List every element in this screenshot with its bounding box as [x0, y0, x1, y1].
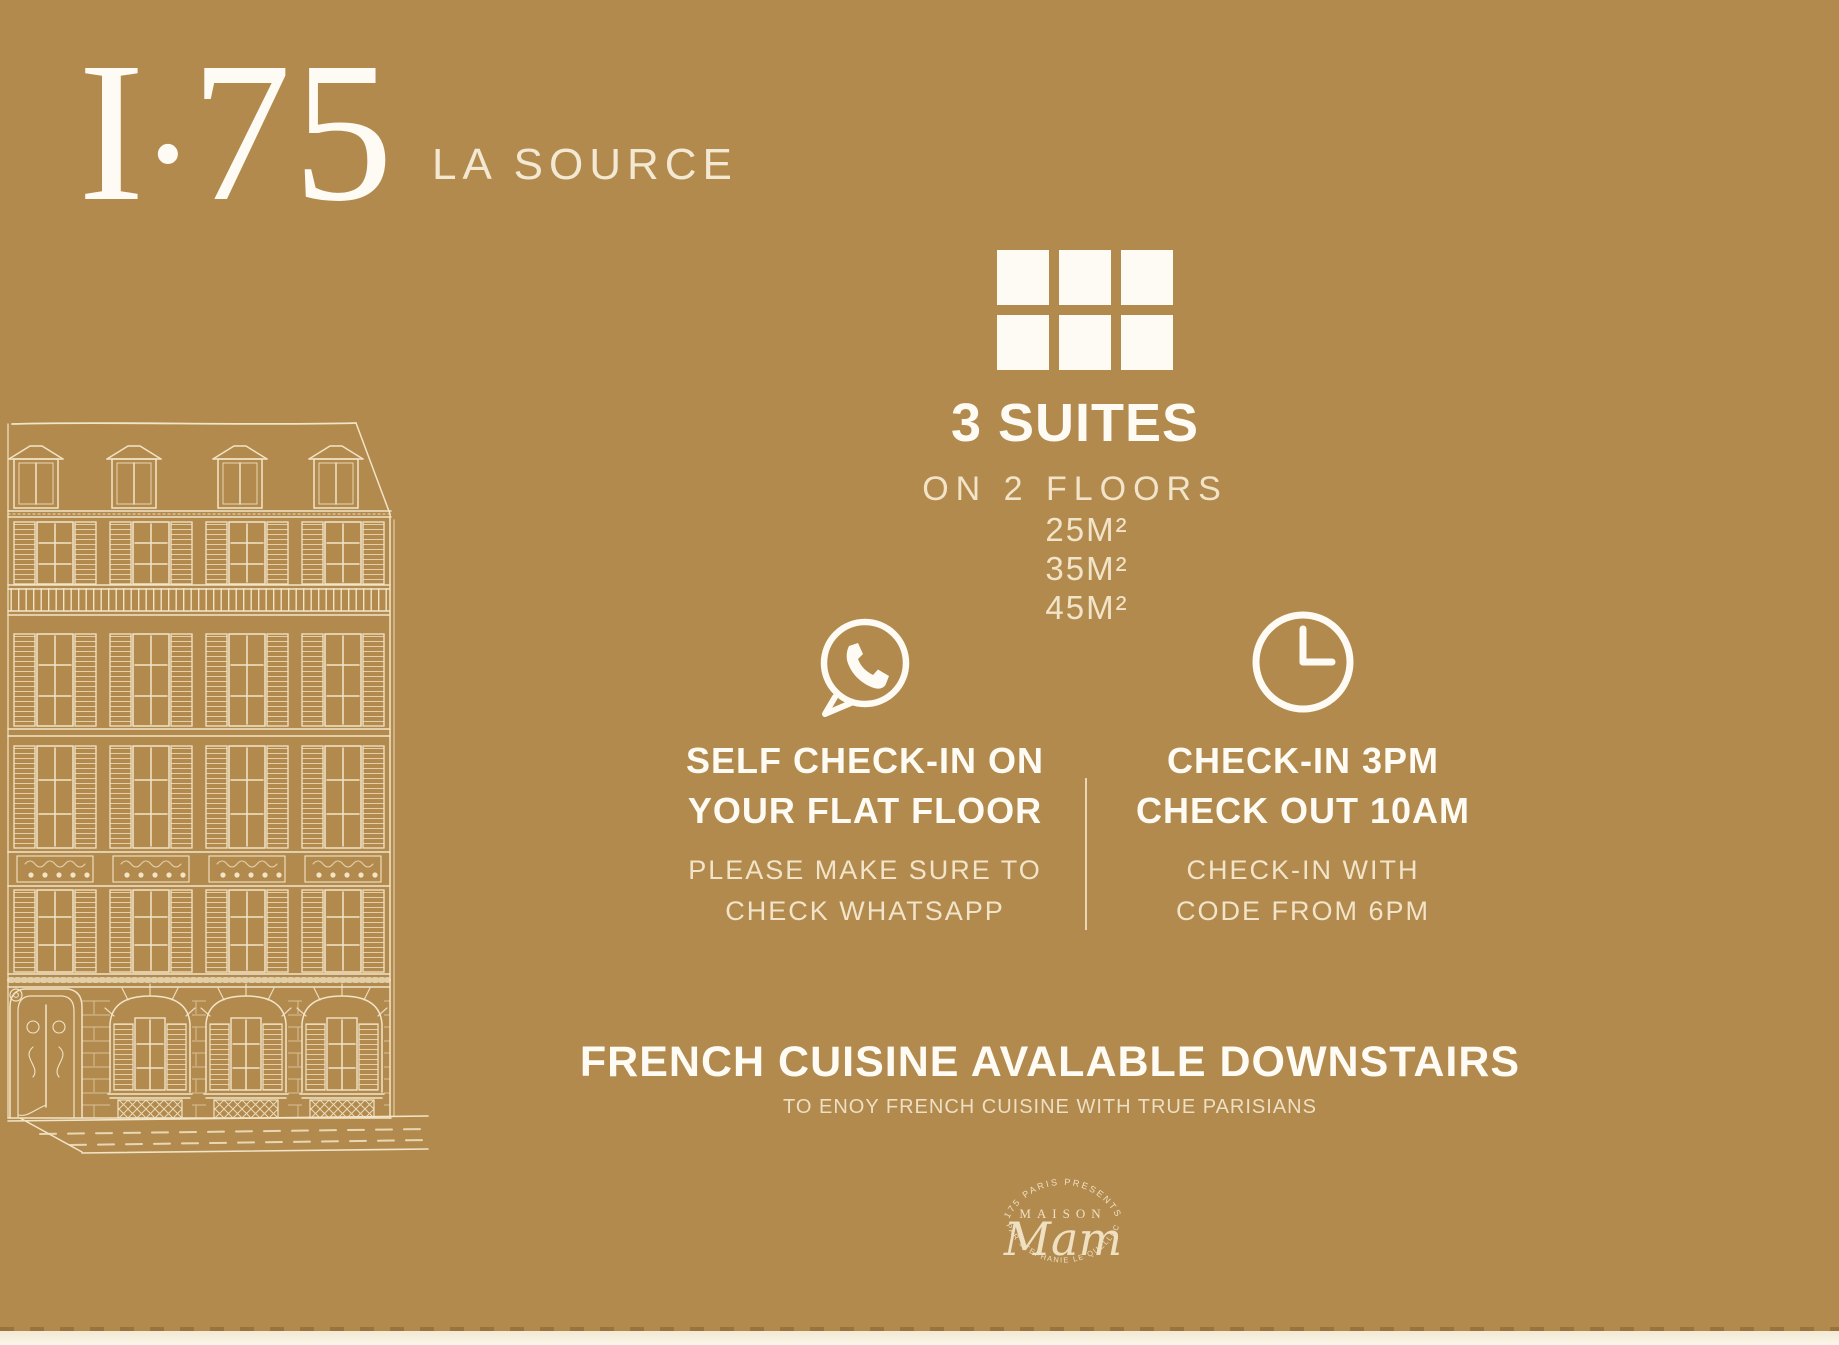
brand-title-letter: I [78, 22, 147, 243]
maison-mam-logo: 175 PARIS PRESENTS MAISON Mam PAR STEPHA… [978, 1122, 1148, 1292]
suites-subheading: ON 2 FLOORS [860, 470, 1290, 509]
brand-subtitle: LA SOURCE [432, 140, 738, 190]
bottom-edge-strip [0, 1331, 1839, 1345]
checkin-time-line1: CHECK-IN 3PM [1093, 736, 1513, 786]
self-checkin-title: SELF CHECK-IN ON YOUR FLAT FLOOR [655, 736, 1075, 836]
checkin-code-note: CHECK-IN WITH CODE FROM 6PM [1093, 850, 1513, 932]
flyer-canvas: I.75 LA SOURCE 3 SUITES ON 2 FLOORS 25M²… [0, 0, 1839, 1345]
suite-size-item: 25M² [872, 510, 1302, 549]
dining-heading: FRENCH CUISINE AVALABLE DOWNSTAIRS [520, 1038, 1580, 1087]
checkin-code-line1: CHECK-IN WITH [1093, 850, 1513, 891]
brand-title-dot: . [147, 16, 192, 195]
self-checkin-note-line2: CHECK WHATSAPP [655, 891, 1075, 932]
whatsapp-icon [813, 615, 917, 719]
brand-title-number: 75 [191, 22, 395, 243]
checkin-time-line2: CHECK OUT 10AM [1093, 786, 1513, 836]
dining-subheading: TO ENOY FRENCH CUISINE WITH TRUE PARISIA… [520, 1096, 1580, 1119]
suites-heading: 3 SUITES [860, 392, 1290, 454]
checkin-code-line2: CODE FROM 6PM [1093, 891, 1513, 932]
self-checkin-title-line1: SELF CHECK-IN ON [655, 736, 1075, 786]
suite-sizes-list: 25M² 35M² 45M² [872, 510, 1302, 627]
clock-icon [1248, 607, 1358, 717]
suite-size-item: 45M² [872, 588, 1302, 627]
room-grid-icon [997, 250, 1173, 370]
self-checkin-note: PLEASE MAKE SURE TO CHECK WHATSAPP [655, 850, 1075, 932]
self-checkin-title-line2: YOUR FLAT FLOOR [655, 786, 1075, 836]
suite-size-item: 35M² [872, 549, 1302, 588]
brand-title: I.75 [78, 28, 395, 238]
checkin-times-title: CHECK-IN 3PM CHECK OUT 10AM [1093, 736, 1513, 836]
column-divider [1085, 778, 1087, 930]
self-checkin-note-line1: PLEASE MAKE SURE TO [655, 850, 1075, 891]
